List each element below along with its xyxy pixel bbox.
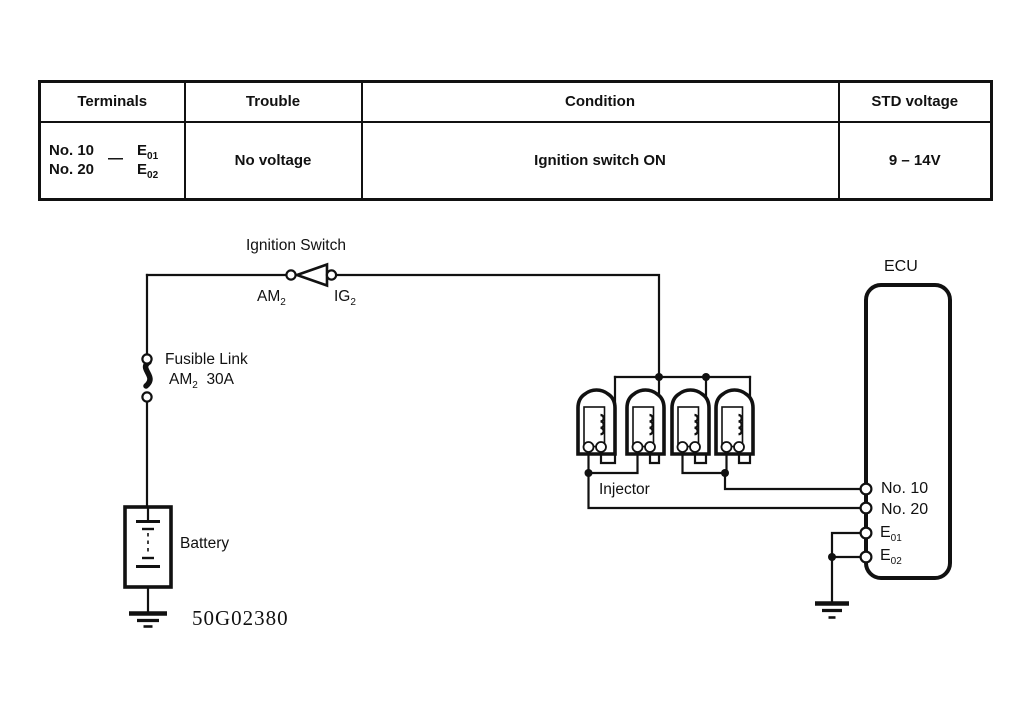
- terminal-left-list: No. 10 No. 20: [49, 141, 94, 179]
- col-header-condition: Condition: [362, 82, 839, 122]
- switch-terminal-am2: [286, 270, 295, 279]
- figure-code: 50G02380: [192, 606, 289, 631]
- col-header-terminals: Terminals: [40, 82, 185, 122]
- table-data-row: No. 10 No. 20 — E01 E02 No voltage Ignit…: [40, 122, 992, 200]
- ecu-box-symbol: [861, 285, 950, 578]
- switch-contact-triangle: [297, 265, 327, 286]
- battery-label: Battery: [180, 535, 229, 553]
- junction-dots: [585, 373, 837, 561]
- ignition-switch-label: Ignition Switch: [246, 237, 346, 255]
- ecu-terminal-no10: [861, 484, 872, 495]
- injector-1: [578, 390, 615, 454]
- fusible-link-symbol: [142, 354, 151, 401]
- am2-label: AM2: [257, 288, 286, 306]
- ecu-terminal-e01: [861, 528, 872, 539]
- battery-ground-symbol: [129, 614, 167, 627]
- injector-3: [672, 390, 709, 454]
- fusible-link-label: Fusible Link: [165, 351, 248, 369]
- terminal-e02: E02: [137, 160, 158, 179]
- terminal-no10: No. 10: [49, 141, 94, 160]
- cell-trouble: No voltage: [185, 122, 362, 200]
- ecu-terminal-no20-label: No. 20: [881, 501, 928, 519]
- col-header-trouble: Trouble: [185, 82, 362, 122]
- col-header-std-voltage: STD voltage: [839, 82, 992, 122]
- table-header-row: Terminals Trouble Condition STD voltage: [40, 82, 992, 122]
- injector-2: [627, 390, 664, 454]
- cell-condition: Ignition switch ON: [362, 122, 839, 200]
- ecu-ground-symbol: [815, 604, 849, 618]
- wire-e01-ground: [832, 533, 861, 601]
- terminal-right-list: E01 E02: [137, 141, 158, 179]
- ig2-label: IG2: [334, 288, 356, 306]
- ecu-terminal-no20: [861, 503, 872, 514]
- switch-terminal-ig2: [327, 270, 336, 279]
- terminal-separator: —: [108, 150, 123, 167]
- ecu-terminal-e02: [861, 552, 872, 563]
- injector-symbols: [578, 390, 753, 454]
- injector-label: Injector: [599, 481, 650, 499]
- fusible-link-rating-label: AM2 30A: [169, 371, 234, 389]
- cell-terminals: No. 10 No. 20 — E01 E02: [40, 122, 185, 200]
- cell-std-voltage: 9 – 14V: [839, 122, 992, 200]
- injector-4: [716, 390, 753, 454]
- ecu-label: ECU: [884, 258, 918, 276]
- wire-injector34-no10: [725, 473, 861, 489]
- ecu-terminal-e02-label: E02: [880, 547, 902, 565]
- battery-symbol: [125, 507, 171, 587]
- trouble-table: Terminals Trouble Condition STD voltage …: [38, 80, 993, 201]
- terminal-e01: E01: [137, 141, 158, 160]
- service-manual-page: Terminals Trouble Condition STD voltage …: [0, 0, 1031, 704]
- terminal-no20: No. 20: [49, 160, 94, 179]
- ignition-switch-symbol: [286, 265, 336, 286]
- ecu-terminal-no10-label: No. 10: [881, 480, 928, 498]
- ecu-terminal-e01-label: E01: [880, 524, 902, 542]
